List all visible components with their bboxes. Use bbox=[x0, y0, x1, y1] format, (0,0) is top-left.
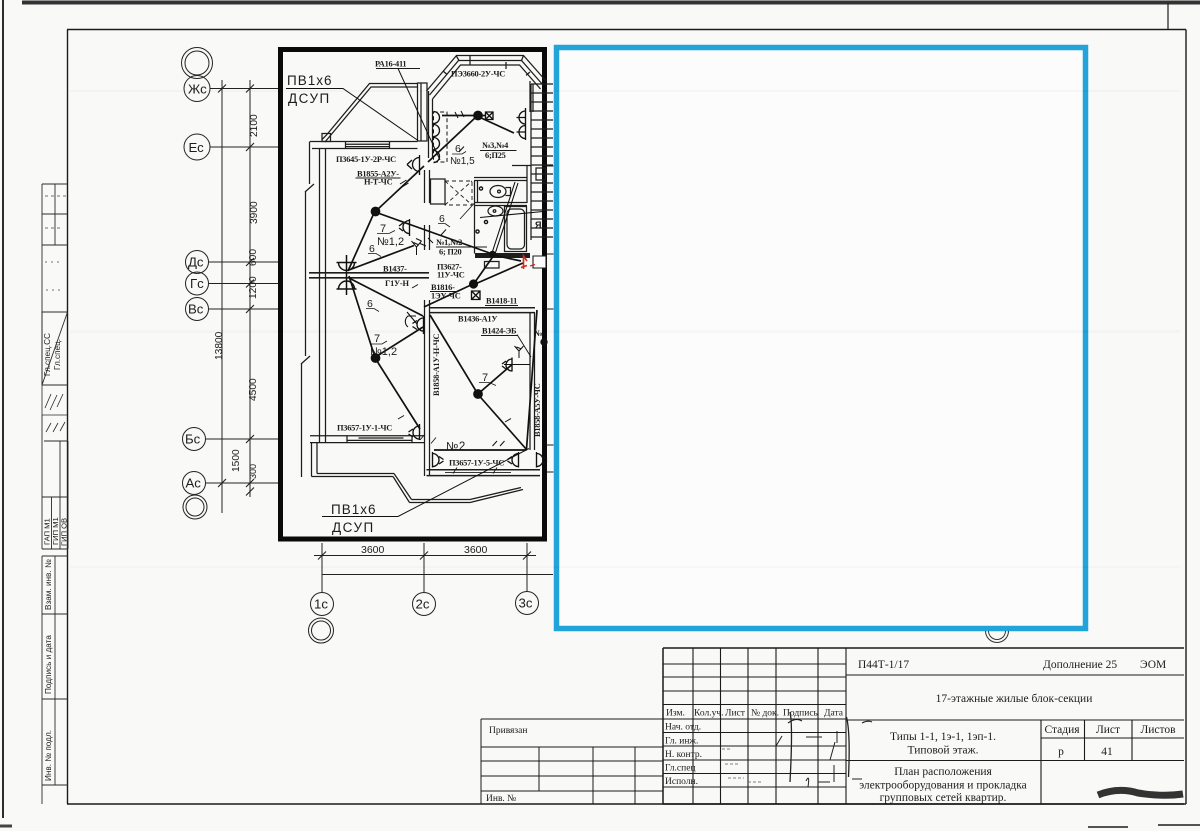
svg-text:П44Т-1/17: П44Т-1/17 bbox=[858, 659, 909, 671]
svg-text:41: 41 bbox=[1101, 746, 1113, 758]
svg-text:Дата: Дата bbox=[824, 709, 844, 719]
svg-text:Инв. №: Инв. № bbox=[486, 794, 516, 804]
svg-text:Типовой этаж.: Типовой этаж. bbox=[908, 745, 979, 757]
svg-text:электрооборудования и проклад: электрооборудования и прокладка bbox=[859, 780, 1027, 792]
svg-text:групповых сетей квартир.: групповых сетей квартир. bbox=[880, 792, 1007, 804]
svg-text:Нач. отд.: Нач. отд. bbox=[665, 723, 701, 733]
svg-text:Н. контр.: Н. контр. bbox=[665, 750, 702, 760]
svg-text:№ док.: № док. bbox=[751, 709, 779, 719]
svg-text:Гл. инж.: Гл. инж. bbox=[665, 737, 698, 747]
svg-text:План расположения: План расположения bbox=[894, 766, 992, 778]
svg-text:Лист: Лист bbox=[725, 709, 746, 719]
svg-text:Гл.спец: Гл.спец bbox=[665, 764, 696, 774]
svg-text:Кол.уч.: Кол.уч. bbox=[694, 709, 724, 719]
svg-text:Подпись: Подпись bbox=[783, 709, 819, 719]
svg-text:р: р bbox=[1058, 746, 1064, 758]
svg-text:Типы 1-1, 1э-1, 1эп-1.: Типы 1-1, 1э-1, 1эп-1. bbox=[890, 731, 996, 743]
svg-text:ЭОМ: ЭОМ bbox=[1140, 659, 1166, 671]
svg-text:Исполн.: Исполн. bbox=[665, 777, 698, 787]
svg-text:Стадия: Стадия bbox=[1044, 724, 1080, 736]
svg-text:Листов: Листов bbox=[1140, 724, 1176, 736]
svg-text:Привязан: Привязан bbox=[489, 726, 527, 736]
svg-text:Изм.: Изм. bbox=[666, 709, 685, 719]
svg-text:Лист: Лист bbox=[1096, 724, 1120, 736]
svg-text:Дополнение 25: Дополнение 25 bbox=[1043, 659, 1117, 671]
svg-text:17-этажные жилые блок-секции: 17-этажные жилые блок-секции bbox=[936, 693, 1093, 705]
